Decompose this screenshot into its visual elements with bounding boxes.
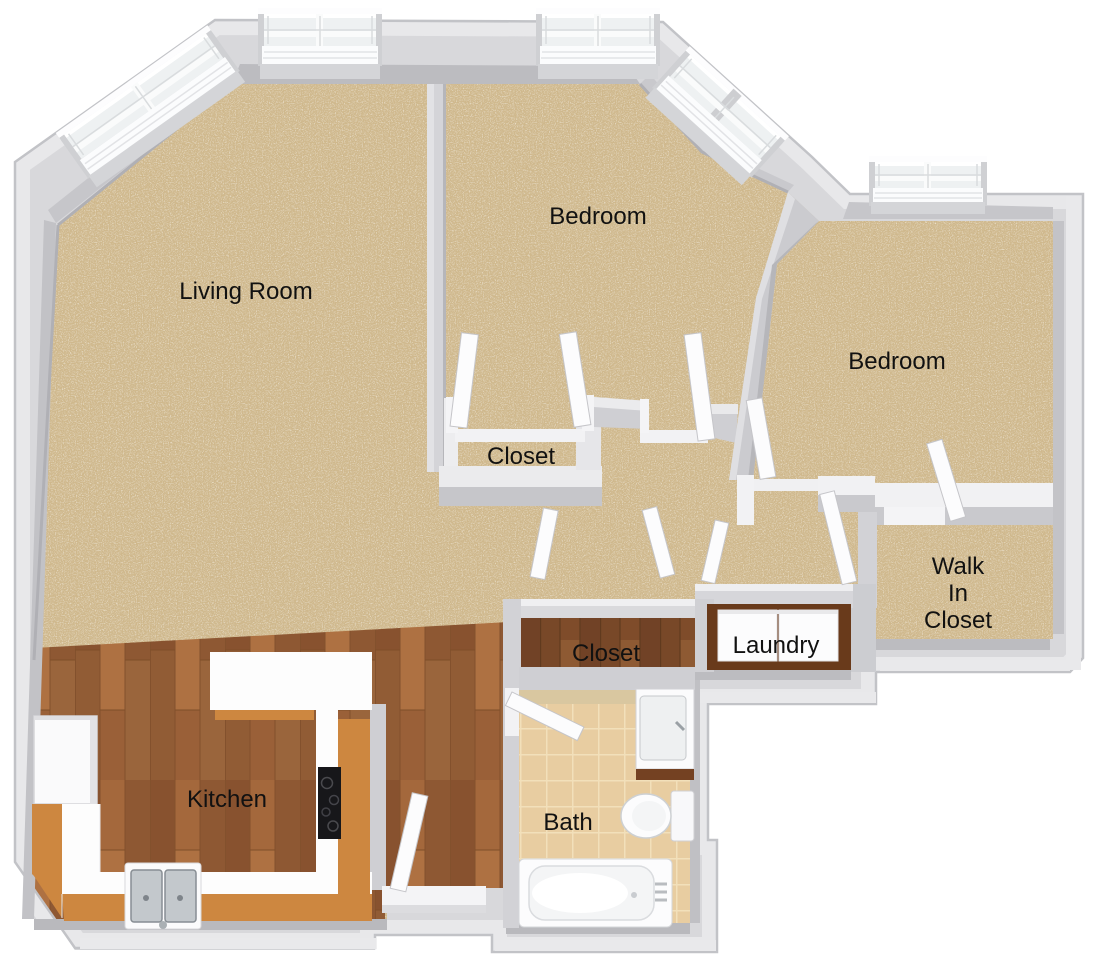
svg-text:Laundry: Laundry bbox=[733, 632, 820, 659]
svg-text:Living Room: Living Room bbox=[179, 278, 312, 305]
svg-text:Closet: Closet bbox=[572, 640, 640, 667]
svg-text:In: In bbox=[948, 580, 968, 607]
svg-text:Closet: Closet bbox=[487, 443, 555, 470]
svg-text:Closet: Closet bbox=[924, 607, 992, 634]
svg-text:Bath: Bath bbox=[543, 809, 592, 836]
svg-text:Kitchen: Kitchen bbox=[187, 786, 267, 813]
svg-text:Walk: Walk bbox=[932, 553, 985, 580]
svg-text:Bedroom: Bedroom bbox=[549, 203, 646, 230]
svg-text:Bedroom: Bedroom bbox=[848, 348, 945, 375]
